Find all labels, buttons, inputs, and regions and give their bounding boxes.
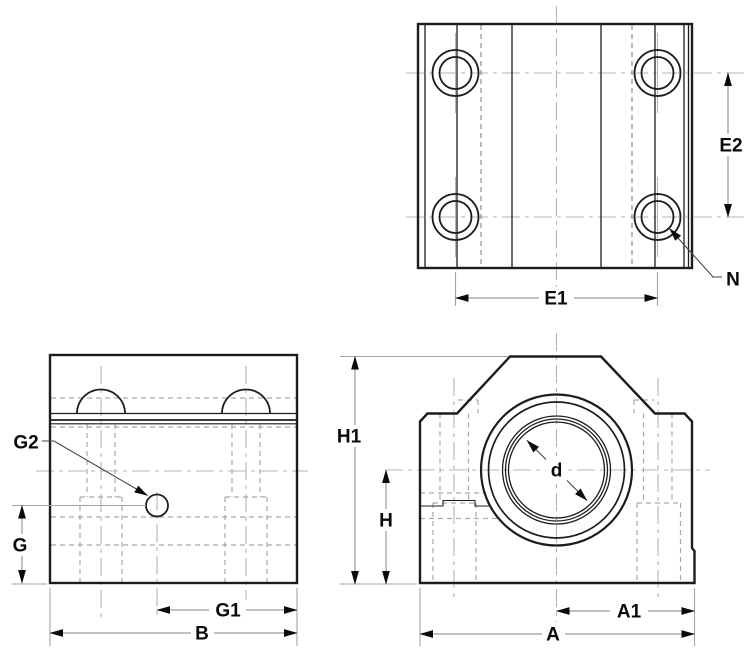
dim-label-d: d <box>551 461 563 482</box>
dim-label-g: G <box>13 536 28 557</box>
dimension-a1: A1 <box>557 588 695 646</box>
dim-label-e2: E2 <box>719 136 742 157</box>
side-view: G2 G G1 B <box>9 355 308 646</box>
dim-label-h: H <box>379 511 393 532</box>
dim-label-g2: G2 <box>13 433 38 454</box>
hidden-mount-hole-right <box>634 400 681 582</box>
dim-label-g1: G1 <box>215 601 241 622</box>
dim-label-e1: E1 <box>544 289 568 310</box>
callout-g2: G2 <box>13 433 147 496</box>
dim-label-n: N <box>726 270 740 291</box>
dimension-g1: G1 <box>157 588 297 646</box>
top-view: E1 E2 N <box>406 6 750 310</box>
dim-label-h1: H1 <box>337 427 362 448</box>
callout-n: N <box>670 229 740 291</box>
dim-label-b: B <box>195 624 209 645</box>
drawing-canvas: E1 E2 N <box>0 0 750 654</box>
hidden-mount-hole-left <box>433 400 478 582</box>
dim-label-a: A <box>546 625 560 646</box>
dimension-b: B <box>50 588 297 646</box>
dimension-e2: E2 <box>714 73 750 217</box>
front-view: d H1 H A1 A <box>330 333 710 646</box>
dim-label-a1: A1 <box>617 602 642 623</box>
engineering-drawing: E1 E2 N <box>0 0 750 654</box>
dimension-a: A <box>420 588 695 646</box>
dimension-h: H <box>374 470 398 584</box>
